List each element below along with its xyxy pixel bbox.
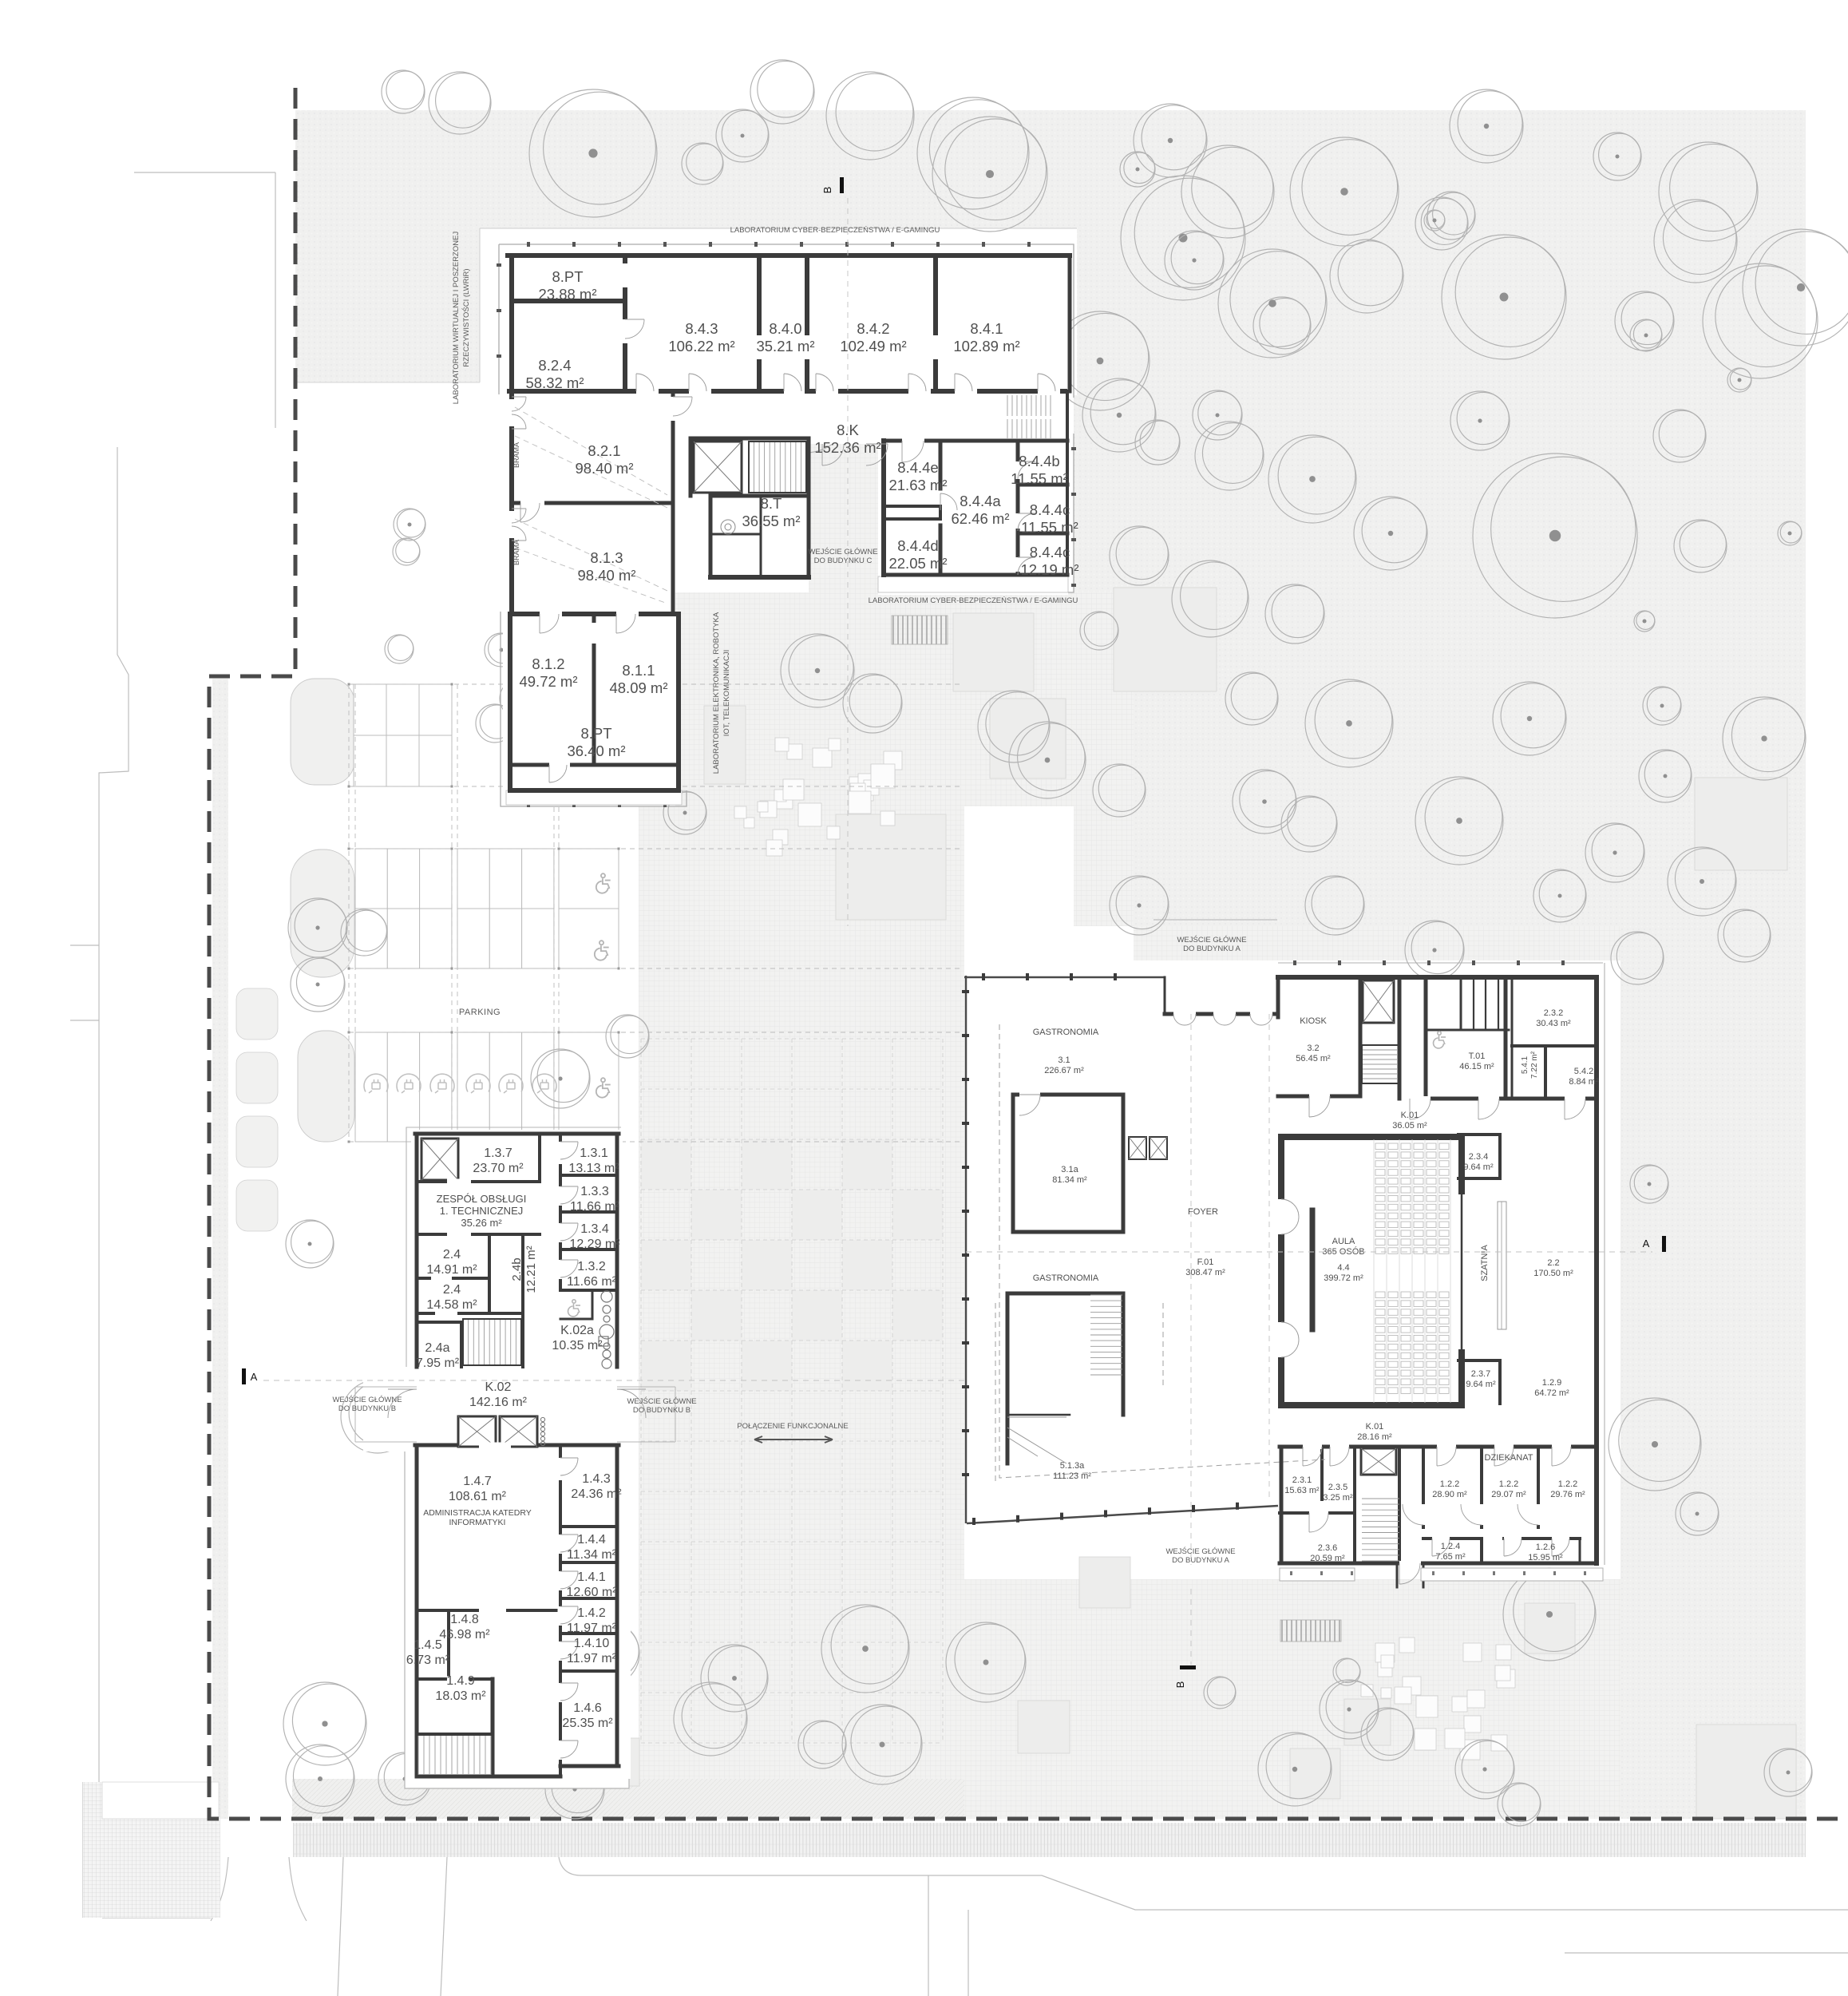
svg-text:BRAMA: BRAMA [512,442,520,468]
svg-text:LABORATORIUM CYBER-BEZPIECZEŃS: LABORATORIUM CYBER-BEZPIECZEŃSTWA / E-GA… [730,226,940,235]
svg-text:A: A [251,1371,258,1383]
svg-text:B: B [1174,1681,1186,1689]
svg-text:WEJŚCIE GŁÓWNEDO BUDYNKU A: WEJŚCIE GŁÓWNEDO BUDYNKU A [1165,1547,1235,1565]
svg-text:LABORATORIUM ELEKTRONIKA, ROBO: LABORATORIUM ELEKTRONIKA, ROBOTYKA [712,612,721,774]
svg-text:SZATNIA: SZATNIA [1480,1245,1490,1281]
svg-text:FOYER: FOYER [1188,1207,1218,1217]
svg-text:8.4.4a62.46 m²: 8.4.4a62.46 m² [951,493,1009,527]
svg-text:IOT, TELEKOMUNIKACJI: IOT, TELEKOMUNIKACJI [722,650,731,737]
svg-text:5.4.1: 5.4.1 [1521,1055,1529,1074]
svg-text:WEJŚCIE GŁÓWNEDO BUDYNKU C: WEJŚCIE GŁÓWNEDO BUDYNKU C [808,547,877,565]
svg-text:WEJŚCIE GŁÓWNEDO BUDYNKU A: WEJŚCIE GŁÓWNEDO BUDYNKU A [1177,935,1246,953]
svg-text:PARKING: PARKING [459,1008,501,1017]
svg-text:POŁĄCZENIE FUNKCJONALNE: POŁĄCZENIE FUNKCJONALNE [737,1422,848,1431]
svg-text:LABORATORIUM WIRTUALNEJ I POSZ: LABORATORIUM WIRTUALNEJ I POSZERZONEJ [452,232,461,405]
svg-text:RZECZYWISTOŚCI (LWRiR): RZECZYWISTOŚCI (LWRiR) [461,268,471,366]
svg-text:WEJŚCIE GŁÓWNEDO BUDYNKU B: WEJŚCIE GŁÓWNEDO BUDYNKU B [332,1395,402,1413]
svg-text:GASTRONOMIA: GASTRONOMIA [1033,1273,1099,1283]
svg-text:LABORATORIUM CYBER-BEZPIECZEŃS: LABORATORIUM CYBER-BEZPIECZEŃSTWA / E-GA… [869,596,1078,605]
svg-text:BRAMA: BRAMA [512,540,520,565]
svg-text:2.4b: 2.4b [510,1257,524,1281]
svg-text:12.21 m²: 12.21 m² [524,1246,538,1293]
svg-text:8.4.4e21.63 m²: 8.4.4e21.63 m² [888,459,947,493]
svg-text:A: A [1643,1238,1650,1249]
svg-text:GASTRONOMIA: GASTRONOMIA [1033,1028,1099,1037]
svg-text:7.22 m²: 7.22 m² [1530,1051,1539,1079]
svg-text:KIOSK: KIOSK [1300,1016,1327,1026]
svg-text:DZIEKANAT: DZIEKANAT [1485,1453,1533,1463]
svg-text:WEJŚCIE GŁÓWNEDO BUDYNKU B: WEJŚCIE GŁÓWNEDO BUDYNKU B [627,1396,696,1415]
svg-text:B: B [821,187,833,194]
svg-text:8.4.4b11.55 m²: 8.4.4b11.55 m² [1011,453,1068,487]
svg-text:8.4.4d22.05 m²: 8.4.4d22.05 m² [888,537,947,572]
svg-text:8.4.4c11.55 m²: 8.4.4c11.55 m² [1021,501,1078,536]
